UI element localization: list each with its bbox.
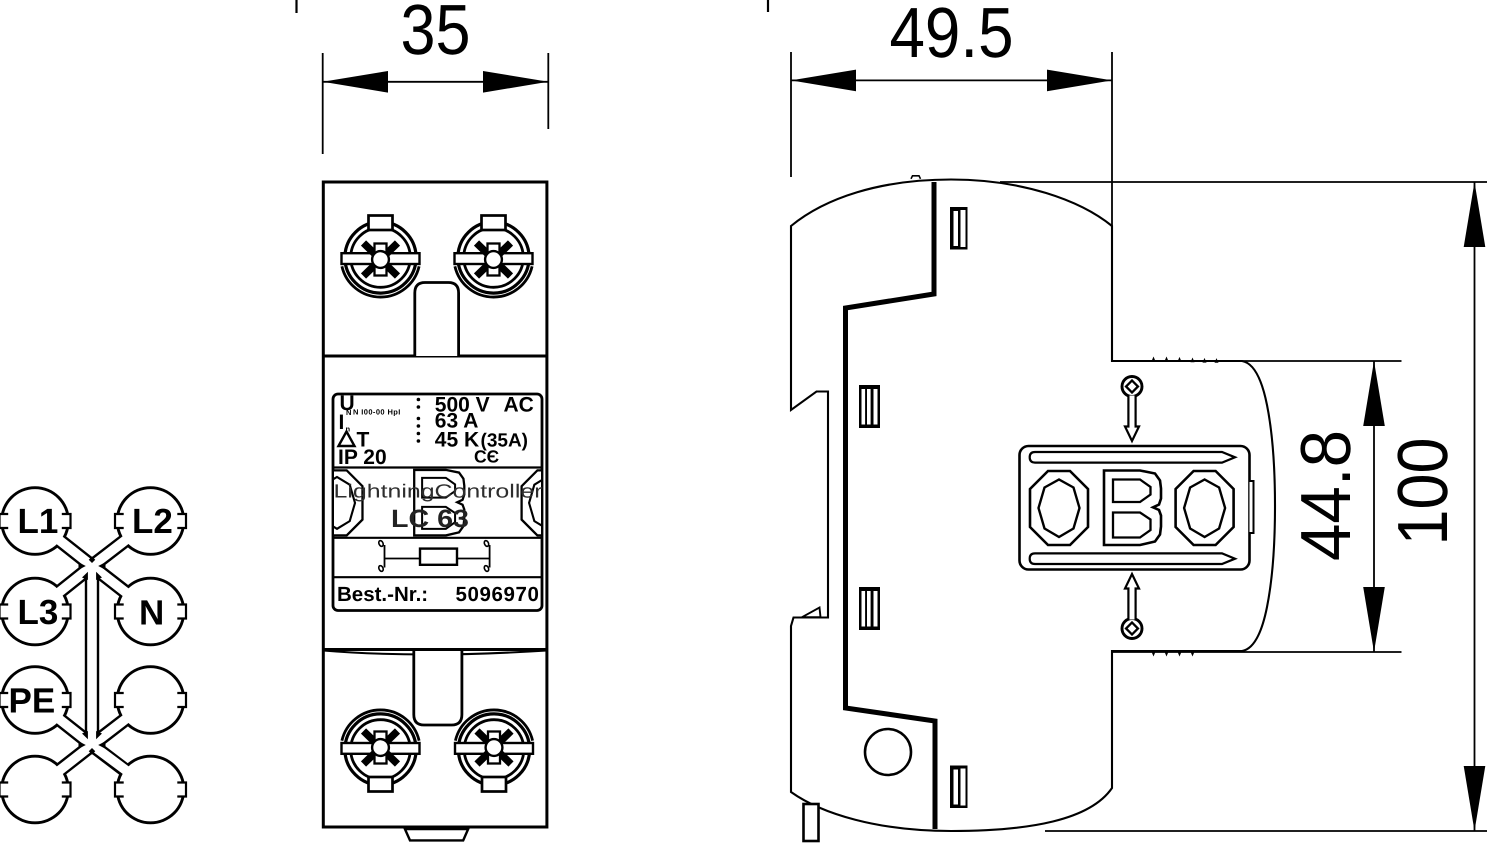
svg-text:I: I [339, 411, 345, 434]
svg-text:35: 35 [401, 0, 471, 70]
svg-text:49.5: 49.5 [890, 0, 1014, 73]
svg-text:L1: L1 [18, 502, 59, 541]
svg-text:AC: AC [504, 394, 534, 417]
svg-text:44.8: 44.8 [1287, 430, 1366, 561]
svg-text:L2: L2 [132, 502, 173, 541]
svg-text:45 K: 45 K [435, 429, 479, 452]
svg-text:5096970: 5096970 [456, 583, 540, 606]
svg-text:IP 20: IP 20 [338, 446, 387, 469]
svg-text:100: 100 [1384, 438, 1463, 546]
svg-text:L3: L3 [18, 593, 59, 632]
svg-text:N: N [346, 408, 351, 417]
svg-text:LightningController: LightningController [334, 482, 544, 503]
svg-text:N I00-00 HpI: N I00-00 HpI [353, 408, 401, 417]
svg-text:N: N [139, 594, 164, 633]
svg-text:CЄ: CЄ [474, 447, 499, 467]
svg-text:PE: PE [9, 682, 56, 721]
svg-text:Best.-Nr.:: Best.-Nr.: [337, 583, 428, 606]
svg-text:LC 63: LC 63 [391, 505, 469, 533]
